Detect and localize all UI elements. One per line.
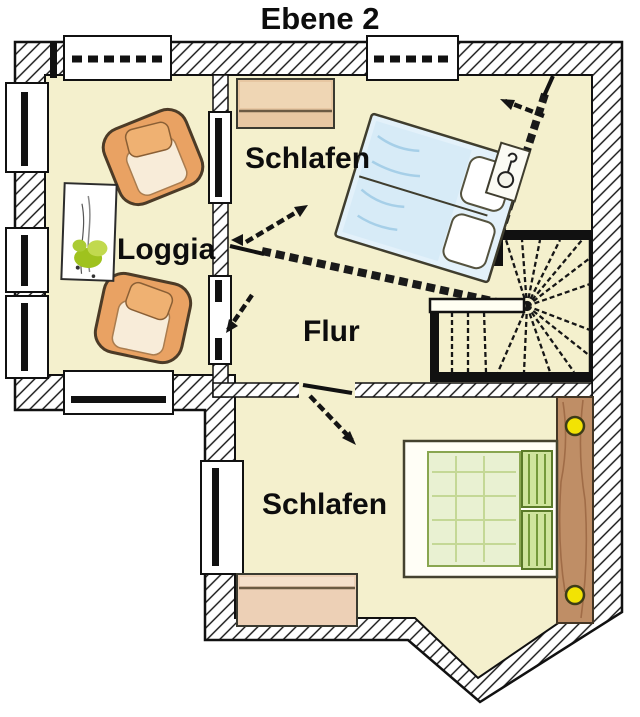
bed-bottom-icon	[404, 441, 557, 577]
door-loggia-upper-icon	[209, 112, 231, 203]
window-left-2-icon	[6, 228, 48, 292]
stairs-landing-rail	[430, 299, 524, 312]
headboard-knob-bottom	[566, 586, 584, 604]
room-label-schlafen-bottom: Schlafen	[262, 488, 387, 521]
room-label-schlafen-top: Schlafen	[245, 142, 370, 175]
wall-bedroom-bottom-top	[213, 383, 592, 397]
window-left-3-icon	[6, 296, 48, 378]
plant-table-icon	[61, 183, 116, 281]
headboard-knob-top	[566, 417, 584, 435]
window-top-right-icon	[367, 36, 458, 80]
armchair-2-icon	[92, 270, 195, 367]
floor-plan-page: Ebene 2	[0, 0, 640, 717]
sideboard-bottom-icon	[237, 574, 357, 626]
window-loggia-bottom-icon	[64, 371, 173, 414]
window-left-1-icon	[6, 83, 48, 172]
room-label-loggia: Loggia	[117, 233, 216, 266]
room-label-flur: Flur	[303, 315, 360, 348]
sideboard-top-icon	[237, 79, 334, 128]
page-title: Ebene 2	[261, 1, 380, 36]
window-top-left-icon	[50, 36, 171, 80]
headboard-icon	[557, 397, 593, 623]
floor-plan-canvas: Ebene 2	[0, 0, 640, 717]
window-bottom-left-icon	[201, 461, 243, 574]
door-loggia-lower-icon	[209, 276, 231, 364]
